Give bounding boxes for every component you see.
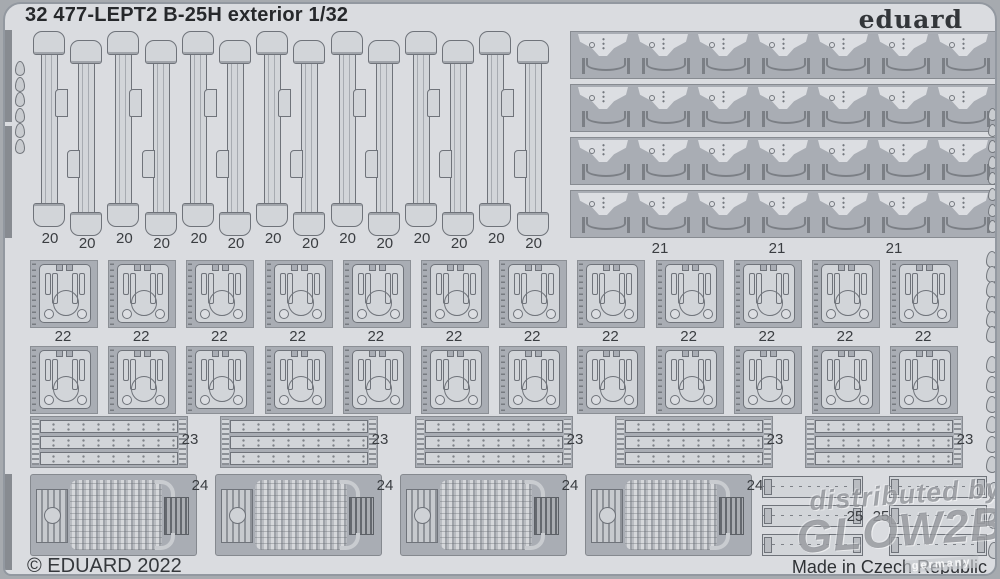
panel-circle-opening: [444, 290, 470, 316]
part20-label: 20: [365, 235, 405, 252]
part22-label: 22: [278, 328, 318, 345]
panel-circle-opening: [366, 290, 392, 316]
bracket-cradle: [642, 164, 690, 180]
bracket-cradle: [822, 111, 870, 127]
teardrop: [988, 512, 997, 529]
grill-24: [215, 474, 382, 556]
grill-hook-top: [710, 480, 730, 497]
panel-screw: [826, 309, 836, 319]
panel-screw: [859, 309, 869, 319]
panel-screw: [703, 309, 713, 319]
grill-fins: [440, 480, 532, 550]
edge-tab: [995, 124, 997, 224]
panel-22: [421, 260, 489, 328]
part22-label: 22: [121, 328, 161, 345]
panel-screw: [312, 309, 322, 319]
bracket-row: [570, 84, 997, 132]
bracket-21: [635, 87, 691, 128]
part23-label: 23: [360, 431, 400, 448]
part-strip-20: [479, 31, 511, 227]
panel-circle-opening: [209, 290, 235, 316]
panel-notch: [379, 265, 386, 271]
inspection-panel: [195, 264, 247, 323]
part20-label: 20: [290, 235, 330, 252]
grill-port: [599, 507, 616, 524]
panel-notch: [457, 351, 464, 357]
part22-label: 22: [512, 328, 552, 345]
panel-slot: [783, 359, 789, 381]
strip-rail: [41, 35, 58, 223]
strip-bottom-block: [405, 203, 437, 227]
panel-22: [656, 260, 724, 328]
panel-22: [421, 346, 489, 414]
perforated-rail: [345, 349, 349, 411]
panel-circle-opening: [209, 376, 235, 402]
teardrop: [988, 204, 997, 217]
panel-screw: [435, 309, 445, 319]
part20-label: 20: [142, 235, 182, 252]
strip-top-block: [145, 40, 177, 64]
panel-circle-opening: [757, 290, 783, 316]
panel-screw: [904, 309, 914, 319]
part22-label: 22: [43, 328, 83, 345]
part23-label: 23: [170, 431, 210, 448]
panel-notch: [682, 351, 689, 357]
panel-22: [186, 346, 254, 414]
teardrop: [988, 140, 997, 153]
rivet-hole: [769, 95, 775, 101]
part24-label: 24: [180, 477, 220, 494]
panel-slot: [514, 359, 520, 381]
panel-screw: [200, 395, 210, 405]
bracket-cradle: [582, 58, 630, 74]
teardrop: [15, 123, 25, 138]
perforated-rail: [814, 263, 818, 325]
panel-notch: [535, 351, 542, 357]
riveted-strip: [230, 420, 368, 433]
panel-circle-opening: [913, 290, 939, 316]
panel-notch: [926, 265, 933, 271]
panel-screw: [122, 395, 132, 405]
panel-slot: [592, 359, 598, 381]
rivet-dots: [662, 37, 665, 51]
bracket-21: [575, 193, 631, 234]
panel-circle-opening: [53, 376, 79, 402]
strip-group-25: [889, 476, 985, 556]
inspection-panel: [352, 264, 404, 323]
grill-hook-bottom: [340, 533, 360, 550]
panel-screw: [122, 309, 132, 319]
grill-port: [414, 507, 431, 524]
panel-notch: [144, 351, 151, 357]
rivet-hole: [889, 201, 895, 207]
panel-slot: [235, 359, 241, 381]
plate-23: [415, 416, 573, 468]
inspection-panel: [430, 350, 482, 409]
panel-circle-opening: [288, 376, 314, 402]
bracket-cradle: [762, 164, 810, 180]
part20-label: 20: [179, 230, 219, 247]
inspection-panel: [117, 264, 169, 323]
bracket-21: [875, 140, 931, 181]
panel-slot: [671, 359, 677, 381]
teardrop: [988, 108, 997, 121]
rivet-dots: [722, 196, 725, 210]
rivet-dots: [902, 143, 905, 157]
strip-bottom-block: [331, 203, 363, 227]
panel-circle-opening: [600, 290, 626, 316]
strip-rail: [115, 35, 132, 223]
rivet-dots: [662, 90, 665, 104]
bracket-21: [575, 87, 631, 128]
panel-22: [577, 260, 645, 328]
bracket-21: [815, 87, 871, 128]
panel-22: [30, 260, 98, 328]
panel-slot: [123, 359, 129, 381]
rivet-dots: [722, 143, 725, 157]
teardrop: [988, 220, 997, 233]
strip-bottom-block: [33, 203, 65, 227]
bracket-cradle: [882, 58, 930, 74]
bracket-cradle: [762, 111, 810, 127]
panel-slot: [705, 273, 711, 295]
strip-rail: [339, 35, 356, 223]
bracket-cradle: [942, 217, 990, 233]
strip-bottom-block: [182, 203, 214, 227]
panel-screw: [546, 395, 556, 405]
grill-hook-top: [155, 480, 175, 497]
part22-label: 22: [199, 328, 239, 345]
grill-right-cap: [534, 497, 559, 535]
inspection-panel: [665, 264, 717, 323]
panel-screw: [468, 395, 478, 405]
rivet-hole: [829, 42, 835, 48]
panel-screw: [390, 309, 400, 319]
inspection-panel: [743, 350, 795, 409]
riveted-strip: [230, 452, 368, 465]
panel-slot: [827, 359, 833, 381]
panel-slot: [392, 273, 398, 295]
panel-notch: [760, 265, 767, 271]
perforated-rail: [110, 349, 114, 411]
bracket-cradle: [762, 217, 810, 233]
strip-top-block: [368, 40, 400, 64]
inspection-panel: [899, 264, 951, 323]
bracket-21: [695, 34, 751, 75]
grill-right-cap: [164, 497, 189, 535]
panel-slot: [827, 273, 833, 295]
strip-top-block: [479, 31, 511, 55]
perforated-rail: [32, 263, 36, 325]
panel-slot: [470, 359, 476, 381]
part20-label: 20: [67, 235, 107, 252]
rivet-hole: [829, 95, 835, 101]
rivet-hole: [949, 95, 955, 101]
rivet-hole: [949, 148, 955, 154]
rivet-dots: [602, 90, 605, 104]
panel-notch: [369, 351, 376, 357]
edge-tab: [5, 30, 12, 122]
rivet-hole: [589, 201, 595, 207]
part20-label: 20: [402, 230, 442, 247]
bracket-cradle: [822, 217, 870, 233]
perforated-rail: [579, 349, 583, 411]
panel-notch: [770, 265, 777, 271]
panel-screw: [748, 309, 758, 319]
part20-label: 20: [30, 230, 70, 247]
part-strip-20: [368, 40, 400, 236]
part23-label: 23: [555, 431, 595, 448]
part-strip-20: [182, 31, 214, 227]
strip-top-block: [442, 40, 474, 64]
bracket-cradle: [642, 58, 690, 74]
strip-top-block: [182, 31, 214, 55]
riveted-strip: [40, 420, 178, 433]
inspection-panel: [39, 264, 91, 323]
panel-notch: [66, 265, 73, 271]
bracket-cradle: [822, 58, 870, 74]
rivet-hole: [769, 148, 775, 154]
plate-23: [220, 416, 378, 468]
rivet-dots: [782, 143, 785, 157]
part-strip-20: [33, 31, 65, 227]
riveted-strip: [815, 436, 953, 449]
bracket-cradle: [582, 164, 630, 180]
perforated-rail: [423, 263, 427, 325]
bracket-cradle: [822, 164, 870, 180]
part20-label: 20: [439, 235, 479, 252]
strip-rail: [413, 35, 430, 223]
edge-tab: [995, 244, 997, 340]
perforated-rail: [188, 349, 192, 411]
strip-top-block: [256, 31, 288, 55]
strip-rail: [487, 35, 504, 223]
strip-top-block: [107, 31, 139, 55]
bracket-cradle: [762, 58, 810, 74]
part25-label: 25: [861, 508, 901, 525]
panel-circle-opening: [53, 290, 79, 316]
bracket-21: [755, 140, 811, 181]
bracket-21: [695, 87, 751, 128]
panel-notch: [301, 351, 308, 357]
flat-strip: [889, 534, 987, 556]
teardrop: [15, 92, 25, 107]
inspection-panel: [743, 264, 795, 323]
panel-screw: [670, 309, 680, 319]
panel-slot: [358, 273, 364, 295]
teardrop: [988, 172, 997, 185]
eduard-logo: eduard: [859, 5, 963, 34]
panel-slot: [392, 359, 398, 381]
rivet-dots: [662, 143, 665, 157]
inspection-panel: [430, 264, 482, 323]
part21-label: 21: [874, 240, 914, 257]
panel-notch: [848, 265, 855, 271]
riveted-strip: [625, 452, 763, 465]
rivet-dots: [602, 37, 605, 51]
panel-22: [890, 346, 958, 414]
flat-strip: [762, 534, 863, 556]
part20-label: 20: [476, 230, 516, 247]
strip-rail: [450, 44, 467, 232]
panel-notch: [56, 351, 63, 357]
panel-circle-opening: [679, 376, 705, 402]
panel-22: [734, 346, 802, 414]
panel-notch: [848, 351, 855, 357]
part-21-bracket-grid: [570, 31, 996, 236]
rivet-hole: [589, 95, 595, 101]
rivet-dots: [902, 37, 905, 51]
rivet-dots: [842, 196, 845, 210]
rivet-hole: [889, 95, 895, 101]
bracket-cradle: [642, 217, 690, 233]
teardrop: [986, 436, 997, 453]
perforated-rail: [814, 349, 818, 411]
panel-screw: [44, 395, 54, 405]
teardrop: [986, 396, 997, 413]
strip-side-tab: [278, 89, 291, 117]
part20-label: 20: [216, 235, 256, 252]
panel-slot: [548, 273, 554, 295]
panel-screw: [748, 395, 758, 405]
rivet-hole: [829, 148, 835, 154]
plate-23: [805, 416, 963, 468]
strip-bottom-block: [219, 212, 251, 236]
bracket-21: [695, 140, 751, 181]
panel-slot: [201, 273, 207, 295]
panel-slot: [358, 359, 364, 381]
bracket-21: [755, 87, 811, 128]
panel-slot: [280, 359, 286, 381]
part22-label: 22: [356, 328, 396, 345]
inspection-panel: [665, 350, 717, 409]
perforated-rail: [892, 263, 896, 325]
panel-screw: [670, 395, 680, 405]
panel-circle-opening: [131, 290, 157, 316]
part-strip-20: [517, 40, 549, 236]
panel-screw: [155, 309, 165, 319]
strip-rail: [153, 44, 170, 232]
rivet-dots: [902, 196, 905, 210]
panel-circle-opening: [600, 376, 626, 402]
teardrop: [15, 61, 25, 76]
strip-rail: [190, 35, 207, 223]
bracket-cradle: [702, 111, 750, 127]
panel-notch: [144, 265, 151, 271]
panel-slot: [314, 359, 320, 381]
teardrop: [986, 376, 997, 393]
panel-notch: [379, 351, 386, 357]
grill-24: [400, 474, 567, 556]
panel-screw: [200, 309, 210, 319]
panel-slot: [157, 273, 163, 295]
panel-slot: [314, 273, 320, 295]
part-strip-20: [293, 40, 325, 236]
bracket-21: [575, 34, 631, 75]
perforated-rail: [267, 263, 271, 325]
rivet-hole: [889, 42, 895, 48]
panel-notch: [613, 351, 620, 357]
grill-24: [30, 474, 197, 556]
plate-23: [30, 416, 188, 468]
part22-label: 22: [590, 328, 630, 345]
strip-rail: [227, 44, 244, 232]
panel-notch: [447, 351, 454, 357]
panel-slot: [235, 273, 241, 295]
panel-notch: [525, 265, 532, 271]
panel-screw: [937, 309, 947, 319]
teardrop: [986, 356, 997, 373]
teardrop: [15, 77, 25, 92]
panel-slot: [861, 273, 867, 295]
part22-label: 22: [747, 328, 787, 345]
panel-slot: [548, 359, 554, 381]
panel-screw: [44, 309, 54, 319]
panel-screw: [546, 309, 556, 319]
bracket-21: [935, 87, 991, 128]
rivet-hole: [949, 42, 955, 48]
strip-side-tab: [142, 150, 155, 178]
perforated-rail: [32, 349, 36, 411]
panel-screw: [937, 395, 947, 405]
panel-22: [30, 346, 98, 414]
bracket-row: [570, 137, 997, 185]
perforated-rail: [110, 263, 114, 325]
rivet-dots: [722, 90, 725, 104]
panel-screw: [357, 395, 367, 405]
rivet-dots: [842, 37, 845, 51]
part20-label: 20: [104, 230, 144, 247]
panel-circle-opening: [835, 376, 861, 402]
inspection-panel: [39, 350, 91, 409]
panel-slot: [939, 273, 945, 295]
bracket-21: [755, 193, 811, 234]
panel-screw: [513, 395, 523, 405]
rivet-hole: [889, 148, 895, 154]
panel-22: [186, 260, 254, 328]
panel-22: [343, 346, 411, 414]
rivet-hole: [709, 201, 715, 207]
panel-slot: [861, 359, 867, 381]
part20-label: 20: [328, 230, 368, 247]
inspection-panel: [508, 264, 560, 323]
panel-notch: [525, 351, 532, 357]
made-in-text: Made in Czech Republic: [792, 557, 987, 576]
strip-rail: [264, 35, 281, 223]
part24-label: 24: [550, 477, 590, 494]
grill-right-cap: [719, 497, 744, 535]
perforated-rail: [267, 349, 271, 411]
panel-circle-opening: [835, 290, 861, 316]
grill-right-cap: [349, 497, 374, 535]
part-strip-20: [256, 31, 288, 227]
plate-23: [615, 416, 773, 468]
panel-slot: [45, 273, 51, 295]
edge-tab: [5, 474, 12, 570]
part-strip-20: [219, 40, 251, 236]
rivet-dots: [902, 90, 905, 104]
bracket-21: [935, 140, 991, 181]
part24-label: 24: [365, 477, 405, 494]
part-strip-20: [405, 31, 437, 227]
teardrop: [988, 542, 997, 559]
panel-slot: [939, 359, 945, 381]
panel-screw: [77, 309, 87, 319]
panel-slot: [749, 273, 755, 295]
panel-slot: [626, 359, 632, 381]
strip-bottom-block: [479, 203, 511, 227]
part22-label: 22: [903, 328, 943, 345]
